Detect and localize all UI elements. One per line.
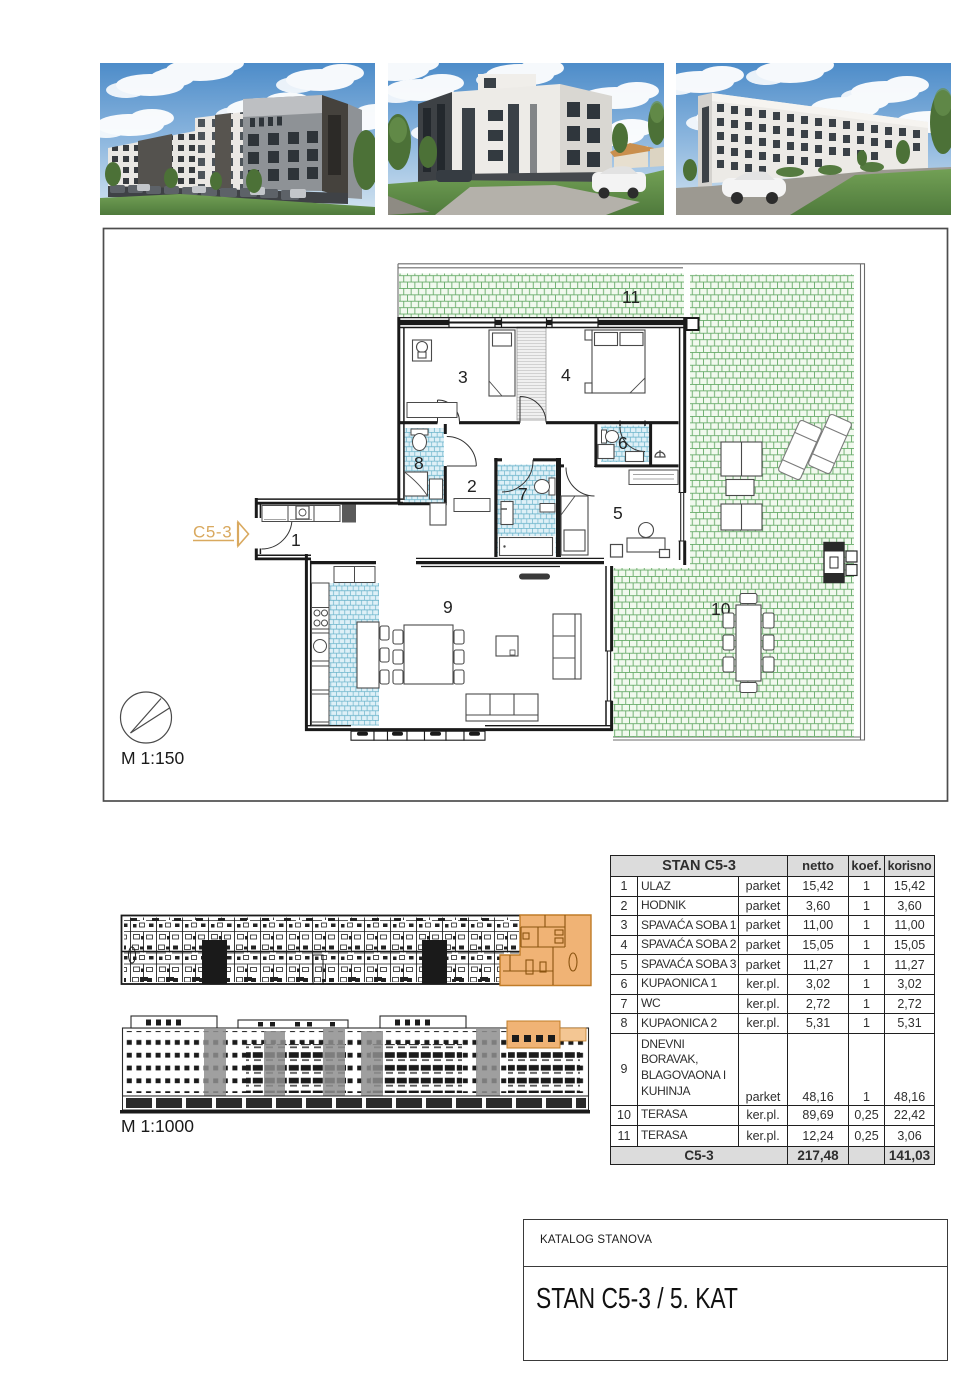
svg-text:M 1:150: M 1:150 bbox=[121, 748, 184, 768]
svg-text:9: 9 bbox=[443, 597, 453, 617]
svg-text:4: 4 bbox=[561, 365, 571, 385]
svg-text:2: 2 bbox=[467, 476, 477, 496]
svg-text:1: 1 bbox=[291, 530, 301, 550]
svg-text:6: 6 bbox=[618, 433, 628, 453]
svg-text:7: 7 bbox=[518, 484, 528, 504]
svg-text:11: 11 bbox=[622, 287, 640, 307]
svg-text:M 1:1000: M 1:1000 bbox=[121, 1116, 194, 1136]
svg-text:C5-3: C5-3 bbox=[193, 523, 232, 542]
svg-text:3: 3 bbox=[458, 367, 468, 387]
svg-text:5: 5 bbox=[613, 503, 623, 523]
svg-text:8: 8 bbox=[414, 453, 424, 473]
